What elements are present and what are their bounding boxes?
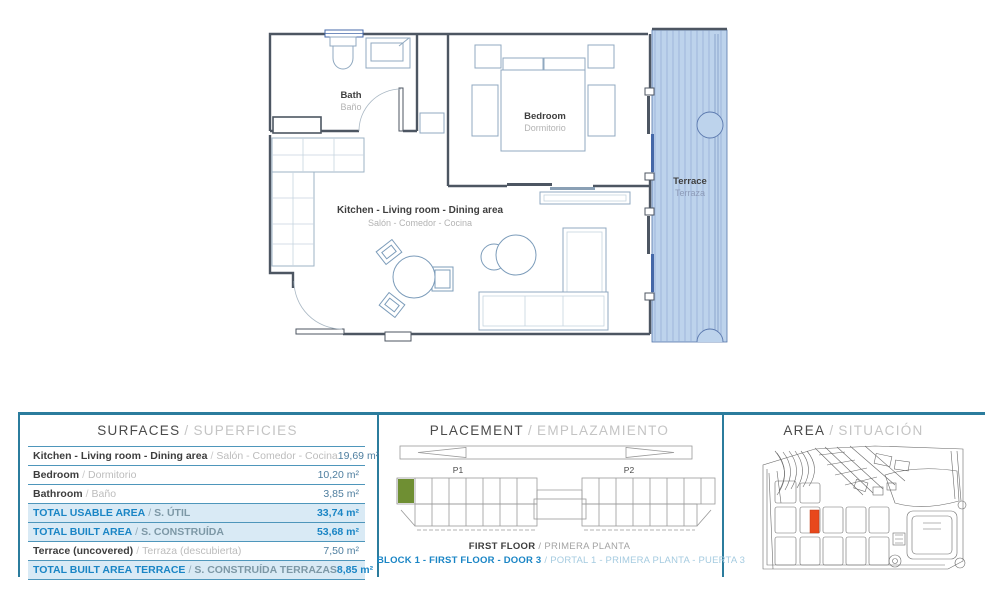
row-value: 8,85 m² [337, 564, 373, 576]
table-row-total: TOTAL USABLE AREA/S. ÚTIL 33,74 m² [28, 504, 365, 523]
floor-label: FIRST FLOOR/PRIMERA PLANTA [377, 541, 722, 552]
dining-set [376, 240, 453, 318]
unit-label: BLOCK 1 - FIRST FLOOR - DOOR 3/PORTAL 1 … [377, 555, 722, 566]
area-panel: AREA/SITUACIÓN [722, 415, 985, 578]
highlighted-unit [398, 479, 414, 503]
wall-stub [385, 332, 411, 341]
armchair-icon [481, 235, 536, 275]
bath-closet [273, 117, 321, 133]
table-row: Bathroom/Baño 3,85 m² [28, 485, 365, 504]
room-label-bedroom-es: Dormitorio [524, 123, 566, 133]
sideboard [540, 192, 630, 204]
table-row: Bedroom/Dormitorio 10,20 m² [28, 466, 365, 485]
row-value: 3,85 m² [323, 488, 359, 500]
row-value: 7,50 m² [323, 545, 359, 557]
surfaces-title: SURFACES/SUPERFICIES [18, 423, 377, 438]
placement-title: PLACEMENT/EMPLAZAMIENTO [377, 423, 722, 438]
room-label-bedroom-en: Bedroom [524, 111, 566, 122]
table-row-total: TOTAL BUILT AREA/S. CONSTRUÍDA 53,68 m² [28, 523, 365, 542]
room-label-terrace-en: Terrace [673, 176, 707, 187]
bed-furniture [501, 58, 585, 151]
bath-door-icon [359, 88, 403, 131]
placement-panel: PLACEMENT/EMPLAZAMIENTO [377, 415, 722, 566]
brochure-page: Bath Baño Bedroom Dormitorio Kitchen - L… [0, 0, 1001, 606]
row-value: 33,74 m² [317, 507, 359, 519]
room-label-living-es: Salón - Comedor - Cocina [368, 218, 472, 228]
terrace-table-icon [697, 112, 723, 138]
room-label-living-en: Kitchen - Living room - Dining area [337, 205, 504, 216]
floorplan-drawing: Bath Baño Bedroom Dormitorio Kitchen - L… [263, 18, 733, 350]
sofa-furniture [479, 228, 608, 330]
building-diagram: P1 P2 [382, 442, 717, 537]
kitchen-counter [272, 138, 364, 266]
row-value: 10,20 m² [318, 469, 359, 481]
portal1-label: P1 [453, 465, 464, 475]
room-label-bath-es: Baño [340, 102, 361, 112]
hall-cabinet [420, 113, 444, 133]
toilet-icon [330, 37, 356, 69]
sink-icon [366, 38, 410, 68]
table-row-total: TOTAL BUILT AREA TERRACE/S. CONSTRUÍDA T… [28, 561, 365, 580]
row-value: 19,69 m² [338, 450, 379, 462]
location-map [755, 443, 970, 578]
surfaces-panel: SURFACES/SUPERFICIES Kitchen - Living ro… [18, 415, 377, 580]
table-row: Terrace (uncovered)/Terraza (descubierta… [28, 542, 365, 561]
portal2-label: P2 [624, 465, 635, 475]
area-title: AREA/SITUACIÓN [722, 423, 985, 438]
bath-window-icon [325, 30, 363, 37]
table-row: Kitchen - Living room - Dining area/Saló… [28, 447, 365, 466]
row-value: 53,68 m² [317, 526, 359, 538]
surfaces-table: Kitchen - Living room - Dining area/Saló… [28, 446, 365, 580]
highlighted-plot [810, 510, 819, 533]
room-label-terrace-es: Terraza [675, 188, 705, 198]
room-label-bath-en: Bath [340, 90, 361, 101]
entry-door-icon [294, 281, 344, 334]
sliding-door-bedroom [507, 183, 595, 190]
